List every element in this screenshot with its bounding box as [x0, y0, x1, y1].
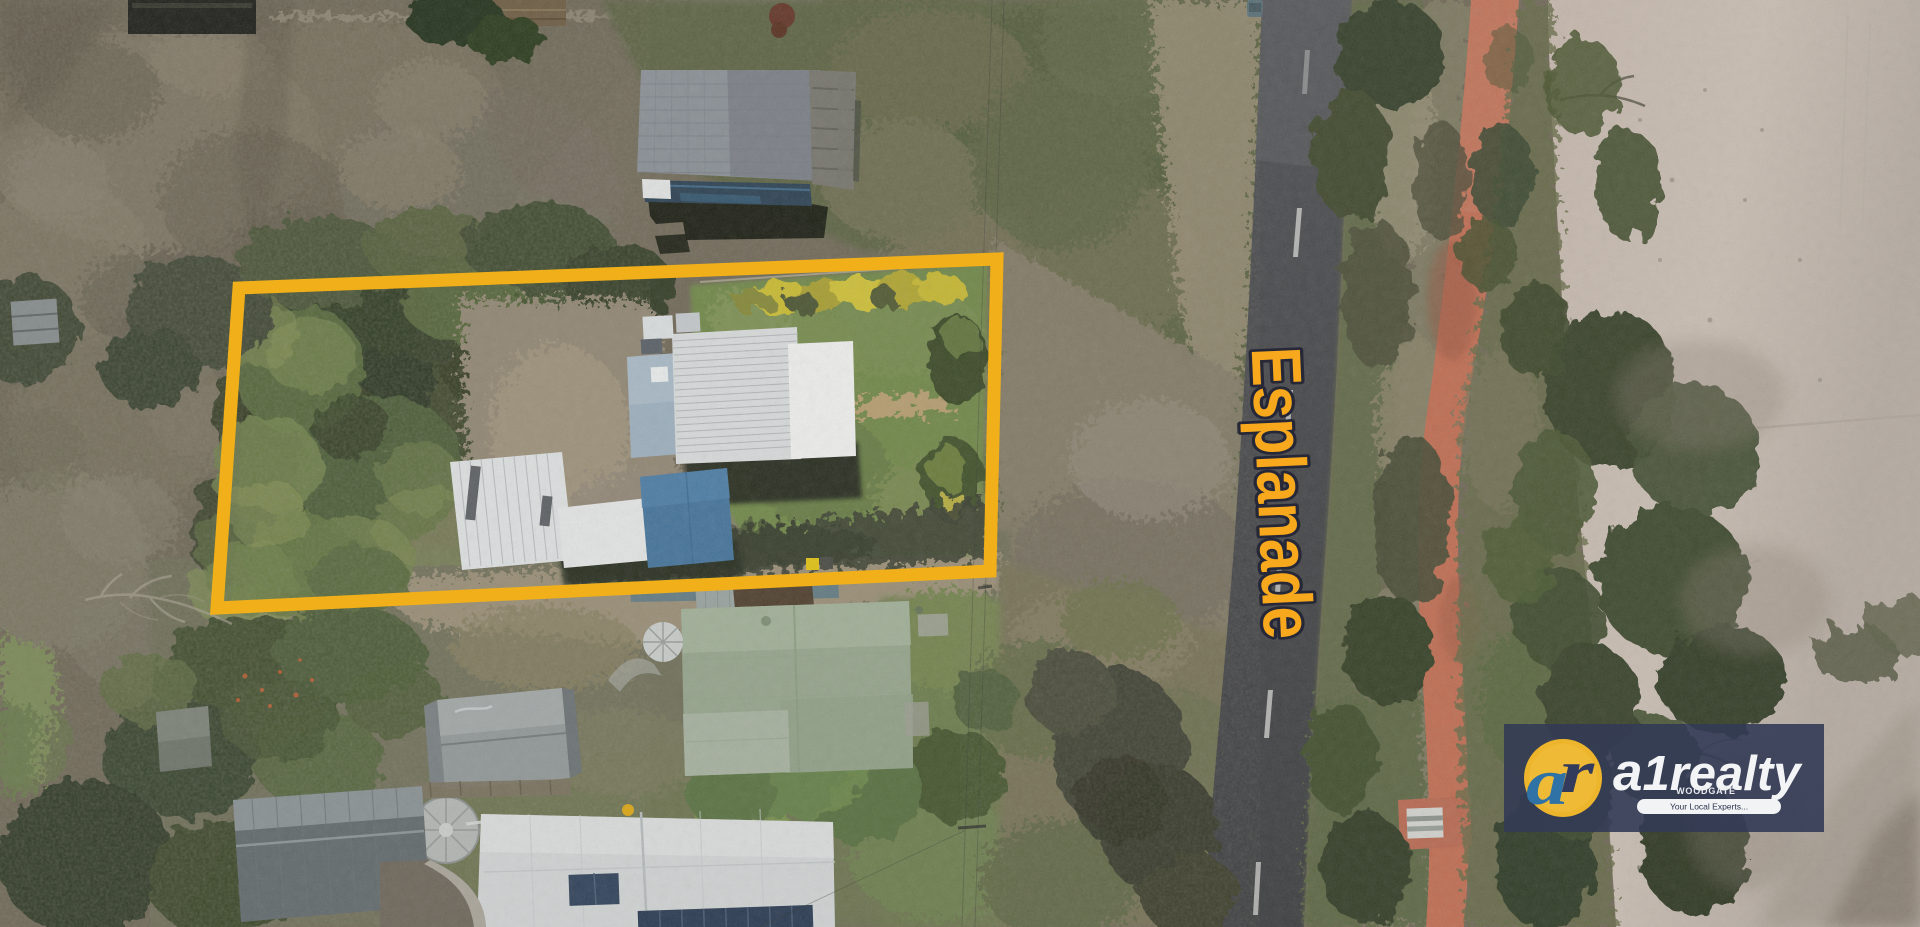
svg-text:r: r	[1560, 739, 1595, 805]
svg-text:WOODGATE: WOODGATE	[1676, 786, 1736, 796]
svg-text:Esplanade: Esplanade	[1237, 345, 1328, 640]
svg-text:Your Local Experts...: Your Local Experts...	[1670, 802, 1748, 812]
